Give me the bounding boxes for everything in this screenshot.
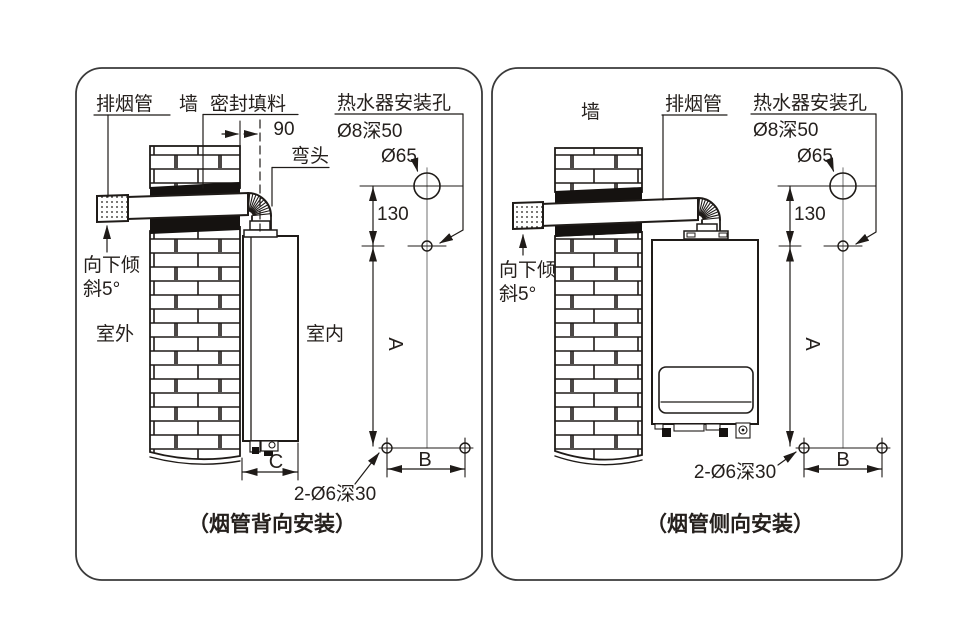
installation-diagram: 90 排烟管 墙 密封填料 弯头 热水器安装孔 Ø8深50 Ø65 xyxy=(0,0,970,622)
wall-label: 墙 xyxy=(581,101,600,123)
hole-diameter-label: Ø65 xyxy=(797,146,833,167)
water-heater-left xyxy=(243,221,298,456)
outdoor-label: 室外 xyxy=(96,323,134,345)
wall-label: 墙 xyxy=(179,93,198,115)
dim-130-value: 130 xyxy=(794,204,826,225)
panel-back-install: 90 排烟管 墙 密封填料 弯头 热水器安装孔 Ø8深50 Ø65 xyxy=(76,68,482,580)
exhaust-pipe-label: 排烟管 xyxy=(96,93,153,115)
pipe-end-grille xyxy=(97,195,128,222)
burner-window xyxy=(659,367,753,413)
hole-diameter-label: Ø65 xyxy=(381,146,417,167)
hole-spec-label: Ø8深50 xyxy=(753,119,818,141)
elbow-label: 弯头 xyxy=(291,145,329,167)
dim-a-label: A xyxy=(384,337,406,351)
dim-130-value: 130 xyxy=(377,204,409,225)
anchor-spec-label: 2-Ø6深30 xyxy=(294,483,376,505)
anchor-spec-label: 2-Ø6深30 xyxy=(694,461,776,483)
caption-side-install: （烟管侧向安装） xyxy=(646,512,814,536)
sealing-filler-label: 密封填料 xyxy=(210,93,286,115)
tilt-label-line1: 向下倾 xyxy=(499,259,556,281)
pipe-end-grille xyxy=(513,202,543,229)
tilt-label-line1: 向下倾 xyxy=(83,254,140,276)
caption-back-install: （烟管背向安装） xyxy=(188,512,356,536)
exhaust-pipe-label: 排烟管 xyxy=(665,93,722,115)
mount-holes-label: 热水器安装孔 xyxy=(753,92,867,114)
panel-side-install: 墙 排烟管 热水器安装孔 Ø8深50 Ø65 xyxy=(492,68,902,580)
indoor-label: 室内 xyxy=(306,323,344,345)
dim-b-label: B xyxy=(418,449,431,471)
tilt-label-line2: 斜5° xyxy=(499,283,536,305)
dim-90-value: 90 xyxy=(273,119,294,140)
water-heater-right xyxy=(652,224,758,438)
mount-holes-label: 热水器安装孔 xyxy=(337,92,451,114)
tilt-label-line2: 斜5° xyxy=(83,278,120,300)
dim-a-label: A xyxy=(801,337,823,351)
diagram-svg: 90 排烟管 墙 密封填料 弯头 热水器安装孔 Ø8深50 Ø65 xyxy=(0,0,970,622)
dim-b-label: B xyxy=(836,449,849,471)
dim-c-label: C xyxy=(269,451,283,473)
hole-spec-label: Ø8深50 xyxy=(337,120,402,142)
